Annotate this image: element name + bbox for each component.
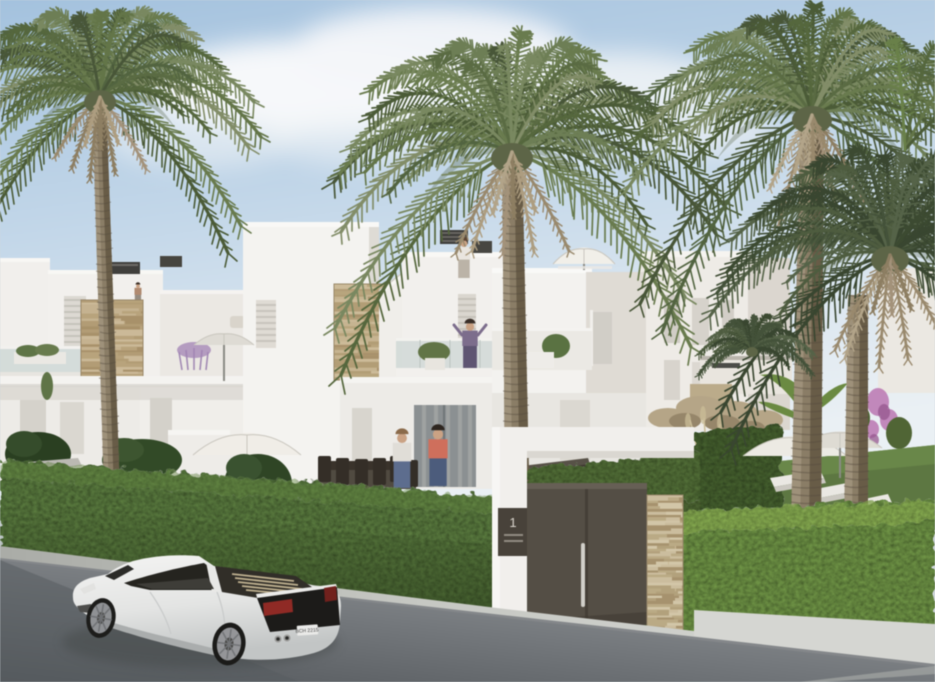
svg-text:1: 1 — [509, 515, 516, 530]
